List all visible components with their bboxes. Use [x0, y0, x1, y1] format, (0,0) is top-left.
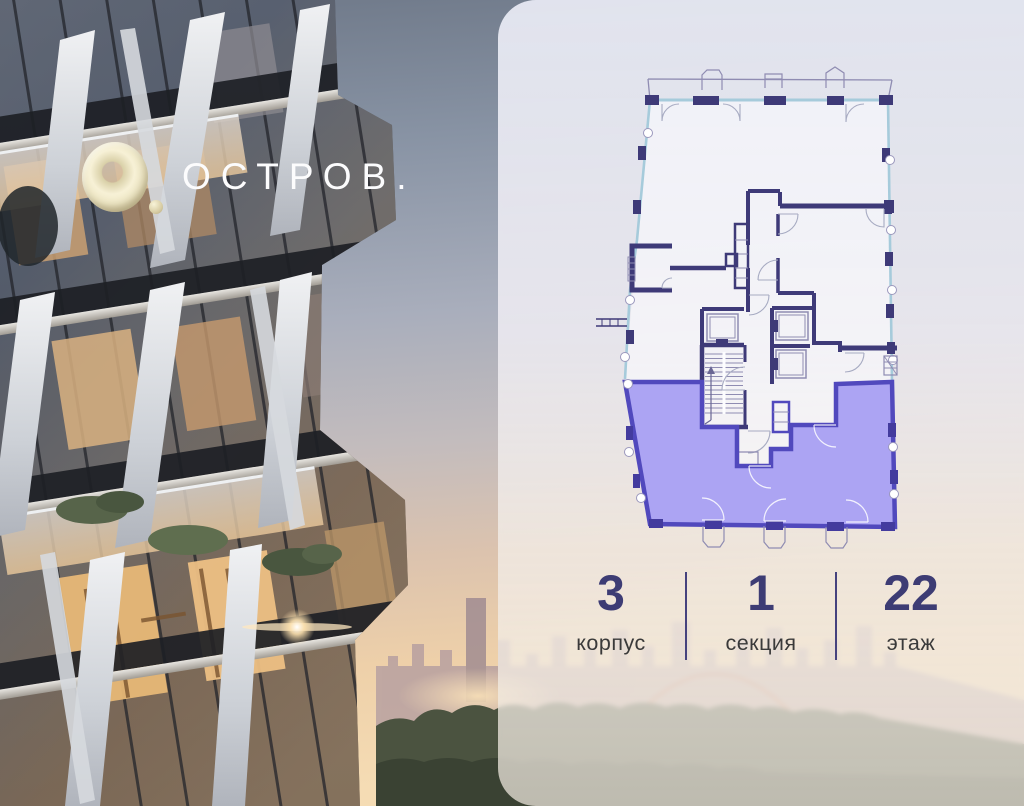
stat-building-label: корпус [537, 631, 685, 656]
stat-section-value: 1 [687, 568, 835, 619]
stat-building: 3 корпус [537, 568, 685, 660]
floor-plan [498, 0, 1024, 570]
logo-ring-icon [82, 142, 148, 212]
logo[interactable]: ОСТРОВ. [82, 142, 416, 212]
top-balconies [648, 67, 892, 100]
stat-section-label: секция [687, 631, 835, 656]
stat-floor: 22 этаж [837, 568, 985, 660]
stat-floor-label: этаж [837, 631, 985, 656]
stat-section: 1 секция [687, 568, 835, 660]
stat-building-value: 3 [537, 568, 685, 619]
logo-wordmark: ОСТРОВ. [182, 156, 416, 198]
stat-floor-value: 22 [837, 568, 985, 619]
page: ОСТРОВ. [0, 0, 1024, 806]
floor-stats: 3 корпус 1 секция 22 этаж [498, 568, 1024, 660]
